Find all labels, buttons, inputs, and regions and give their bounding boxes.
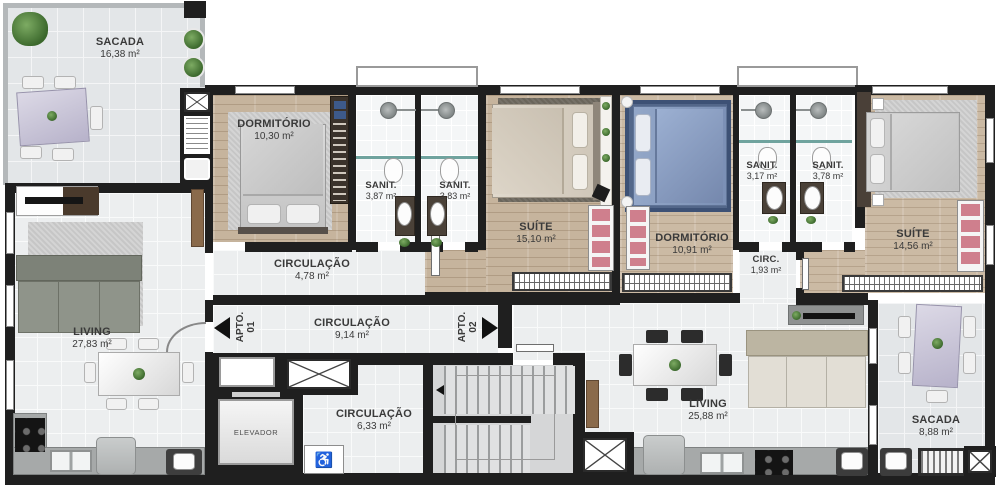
shower-glass [796,140,852,143]
shower-icon [755,102,772,119]
sofa [16,255,142,335]
plant-icon [602,102,610,110]
shower-arm [421,109,439,111]
wash-basin-icon [836,448,868,476]
chair [54,76,76,89]
pillow [870,154,885,184]
wall-stair-top [423,353,513,365]
chair [106,398,127,410]
wall-hall-stub [498,303,512,348]
balcony-railing-top [5,3,205,8]
column [184,1,206,18]
room-label-sacada-2: SACADA 8,88 m² [912,414,960,439]
window-left-3 [6,360,14,410]
closet-clothes [961,204,980,268]
ac-unit-icon [184,158,210,180]
potted-plant-icon [182,28,205,51]
closet [626,206,650,270]
sink-icon [804,186,821,210]
room-label-sacada-1: SACADA 16,38 m² [96,36,144,61]
sofa-back [746,330,868,356]
tv-panel [16,186,98,216]
pillow [572,154,588,190]
window-living2-balcony-1 [869,328,877,364]
wall-bath-divider-2 [790,88,796,242]
nightstand [621,96,633,108]
wall-suite1-dorm2 [612,88,620,305]
sink-icon [397,202,412,226]
closet-clothes [592,209,610,267]
elevator-landing-recess [219,357,275,387]
window-right-1 [986,118,994,163]
elevator-label: ELEVADOR [234,428,278,437]
table-plant-icon [669,359,681,371]
window-top-4 [872,86,948,94]
plant-icon [806,216,816,224]
bed-double [492,104,598,198]
room-label-living-2: LIVING 25,88 m² [688,398,727,423]
shaft-x-icon [184,92,210,112]
apto-01-arrow-icon [214,317,230,339]
shower-arm [396,109,416,111]
chair [22,76,44,89]
pillow [635,158,651,196]
window-top-2 [500,86,580,94]
chair [898,316,911,338]
cooktop-icon [15,418,45,452]
window-top-3 [640,86,720,94]
door-living1-circulation [191,189,204,247]
window-living2-balcony-2 [869,405,877,445]
room-label-suite-1: SUÍTE 15,10 m² [516,221,555,246]
room-label-sanit-2: SANIT. 3,83 m² [439,180,470,202]
wall-dorm2-bottom [615,293,740,303]
plant-icon [602,154,610,162]
room-label-dormitorio-1: DORMITÓRIO 10,30 m² [237,118,311,143]
bath-window-recess-2 [737,66,858,87]
wall-bath-suite1 [478,88,486,250]
chair [619,354,632,376]
window-top-1 [235,86,295,94]
accessibility-box: ♿ [304,445,344,474]
wall-living1-right-a [205,183,213,253]
pillow [286,204,320,224]
table-plant-icon [133,368,145,380]
chair [963,316,976,338]
duvet [492,108,564,194]
table-plant-icon [47,111,57,121]
floor-plan: ELEVADOR [0,0,1000,488]
wall-dorm2-bath [733,88,739,250]
apto-label: APTO. [457,312,468,342]
chair [52,148,74,161]
chair [138,338,159,350]
wheelchair-icon: ♿ [315,451,334,469]
wardrobe [330,96,349,204]
chair [182,362,194,383]
room-label-dormitorio-2: DORMITÓRIO 10,91 m² [655,232,729,257]
room-label-sanit-3: SANIT. 3,17 m² [746,160,777,182]
nightstand [872,194,884,206]
wall-suite1-bottom [425,292,612,305]
plant-icon [768,216,778,224]
wall-suite2-bottom [796,293,868,305]
apto-number: 01 [246,321,257,332]
wall-living2-balcony [868,300,878,473]
window-sill [512,272,612,291]
plant-icon [602,128,610,136]
room-label-hall-2: CIRCULAÇÃO 6,33 m² [336,408,412,433]
sink-basin [885,452,907,470]
nightstand [872,98,884,110]
stairs-direction-arrow [436,385,444,395]
double-sink-icon [50,450,92,472]
room-label-living-1: LIVING 27,83 m² [72,326,111,351]
wall-core-mid [358,353,423,365]
shower-icon [380,102,397,119]
laundry-sink-icon [166,449,202,475]
sink-icon [430,202,445,226]
grill-icon [918,448,966,476]
sofa-seats [748,356,866,408]
tv-icon [803,313,855,319]
bush-plant-icon [12,12,48,46]
wall-bedroom1-bottom [245,242,352,252]
apto-number: 02 [468,321,479,332]
room-label-sanit-1: SANIT. 3,87 m² [365,180,396,202]
chair [646,388,668,401]
potted-plant-icon [182,56,205,79]
pillow [247,204,281,224]
apto-label: APTO. [235,312,246,342]
hangers [333,123,346,201]
apto-02-arrow-icon [482,317,498,339]
closet-clothes [630,210,646,266]
headboard [238,227,328,234]
sink-basin [173,453,195,470]
shower-icon [810,102,827,119]
table-plant-icon [932,338,943,349]
wall-circulation1-bottom [213,295,425,305]
pillow [870,118,885,148]
bath-window-recess-1 [356,66,478,87]
chair [926,390,948,403]
storage-box [334,101,346,109]
window-left-1 [6,212,14,254]
elevator-car: ELEVADOR [218,399,294,465]
chair [20,146,42,159]
closet [957,200,984,272]
pillow [572,112,588,148]
room-label-suite-2: SUÍTE 14,56 m² [893,228,932,253]
wall-living1-right-b [205,300,213,322]
wall-bath2-bottom-c [844,242,855,252]
room-label-circulacao-1: CIRCULAÇÃO 4,78 m² [274,258,350,283]
wall-bath1-bottom-c [465,242,478,252]
window-left-2 [6,285,14,327]
door-stair-living2 [586,380,599,428]
plant-icon [431,238,442,247]
room-label-sanit-4: SANIT. 3,78 m² [812,160,843,182]
window-right-2 [986,225,994,265]
door-circ2-suite2 [802,258,809,290]
tv-icon [25,197,83,204]
apto-01-marker: APTO. 01 [235,305,265,349]
shower-glass [739,140,790,143]
sink-icon [766,186,783,210]
pillow [635,114,651,152]
storage-box [334,111,346,119]
chair [646,330,668,343]
window-sill [842,275,983,292]
chair [84,362,96,383]
elevator-door [232,392,280,397]
wall-bath-divider-1 [415,88,421,242]
balcony-railing-left [3,3,8,185]
room-label-circ-2: CIRC. 1,93 m² [751,254,782,276]
fridge-icon [643,435,685,475]
bed-double [866,112,960,192]
cooktop-icon [755,450,793,475]
room-label-hall: CIRCULAÇÃO 9,14 m² [314,317,390,342]
duvet [890,114,958,190]
chair [681,330,703,343]
shaft-x-icon [287,359,351,389]
plant-icon [792,311,801,320]
closet [588,205,614,271]
chair [963,352,976,374]
duvet [655,109,723,203]
sofa [746,330,868,410]
vent-grille-icon [184,116,210,154]
chair [898,352,911,374]
stairs-guide-line [455,375,555,460]
sideboard [788,305,864,325]
door-apto2-entry [516,344,554,352]
sink-basin [841,452,863,470]
wall-bedroom1-bath [348,88,356,250]
wall-bath1-bottom-a [356,242,378,252]
chair [719,354,732,376]
chair [90,106,103,130]
wall-bath2-bottom-a [739,242,759,252]
double-sink-icon [700,452,744,474]
chair [138,398,159,410]
wall-stair-left [423,365,433,473]
shower-glass [356,156,415,159]
sofa-back [16,255,142,281]
shaft-x-icon [968,450,992,473]
bed-double [633,106,727,206]
fridge-icon [96,437,136,475]
window-sill [622,273,732,292]
bbq-sink-icon [880,448,912,476]
plant-icon [399,238,410,247]
shower-icon [438,102,455,119]
shaft-x-icon [583,438,627,472]
